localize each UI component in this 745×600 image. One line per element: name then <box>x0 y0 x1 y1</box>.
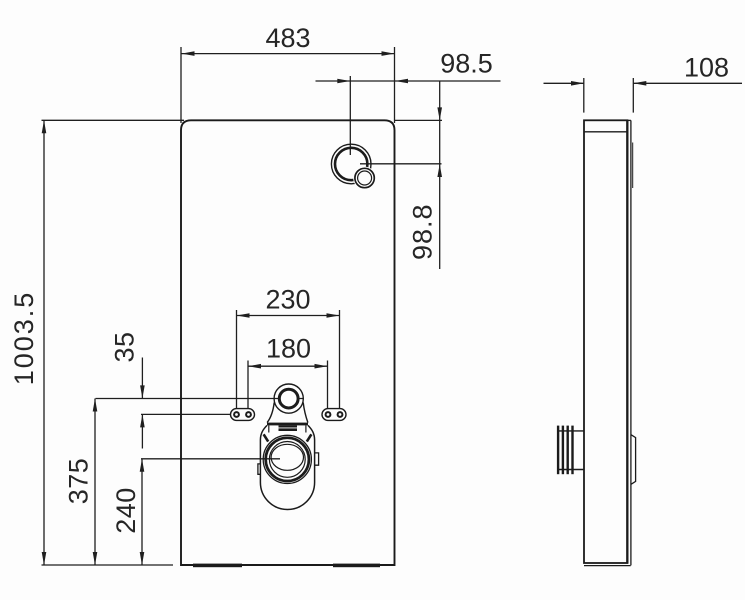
svg-text:35: 35 <box>109 331 139 362</box>
svg-text:1003.5: 1003.5 <box>9 291 39 386</box>
svg-text:108: 108 <box>684 52 729 82</box>
svg-text:375: 375 <box>63 458 93 505</box>
svg-text:98.5: 98.5 <box>440 48 493 78</box>
svg-text:483: 483 <box>265 23 310 53</box>
svg-text:180: 180 <box>266 334 311 364</box>
svg-text:98.8: 98.8 <box>407 203 437 260</box>
svg-text:230: 230 <box>265 284 310 314</box>
svg-text:240: 240 <box>111 487 141 534</box>
